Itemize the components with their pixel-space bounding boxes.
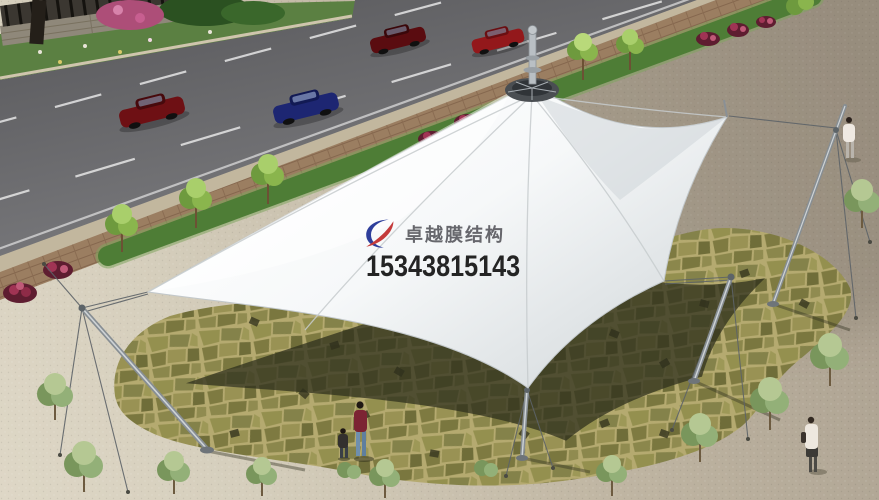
brand-logo-icon [360,218,398,250]
flower-bush [96,0,164,30]
phone-number: 15343815143 [366,250,520,284]
brand-name: 卓越膜结构 [405,221,505,247]
architectural-rendering: 卓越膜结构 15343815143 [0,0,879,500]
watermark: 卓越膜结构 15343815143 [360,218,550,284]
